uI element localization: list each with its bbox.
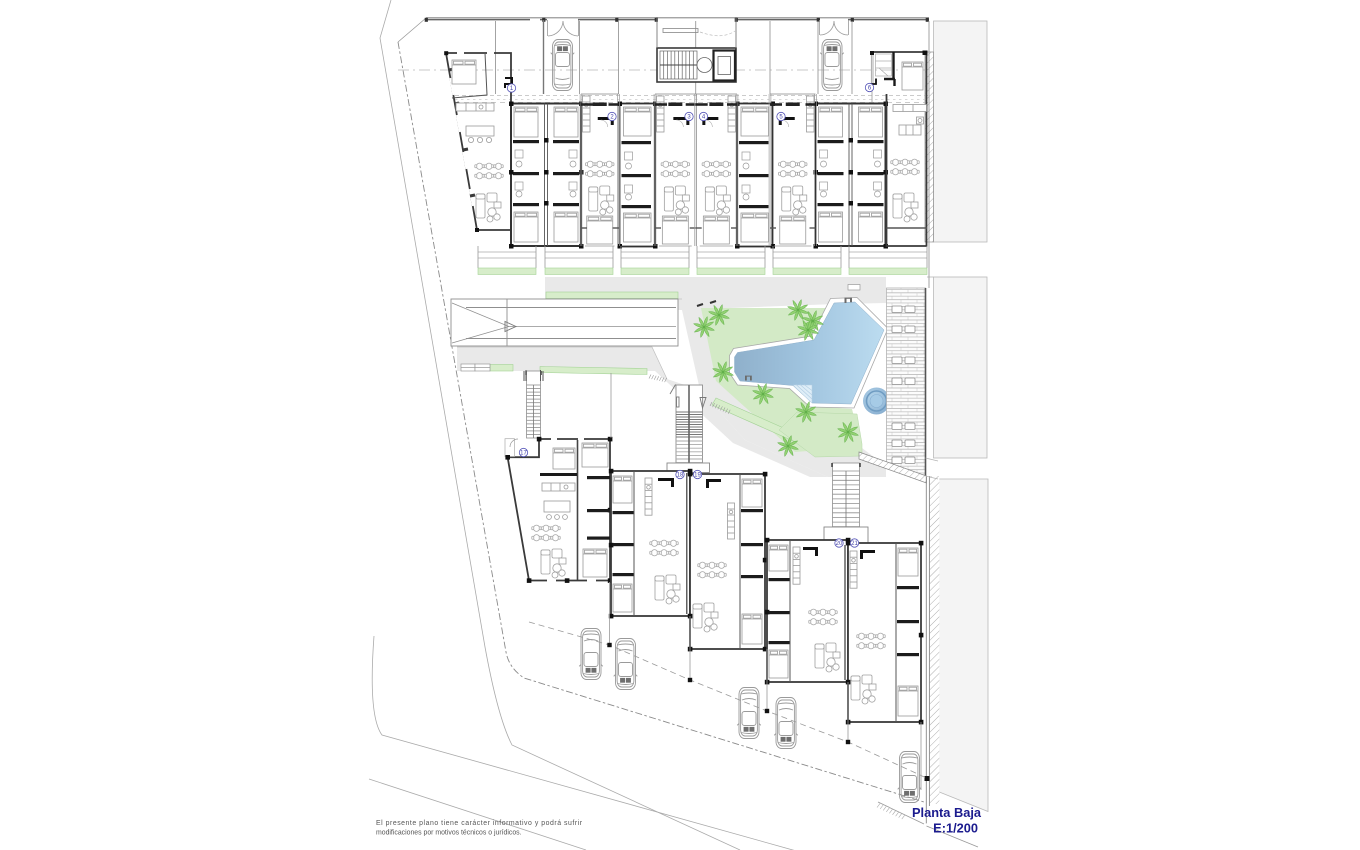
svg-text:E:1/200: E:1/200 (933, 821, 978, 836)
svg-text:19: 19 (694, 473, 701, 479)
svg-text:17: 17 (520, 451, 527, 457)
svg-text:El presente plano tiene caráct: El presente plano tiene carácter informa… (376, 820, 583, 827)
svg-text:modificaciones por motivos téc: modificaciones por motivos técnicos o ju… (376, 830, 522, 837)
svg-text:18: 18 (677, 473, 684, 479)
svg-text:20: 20 (836, 541, 843, 547)
svg-text:21: 21 (851, 541, 858, 547)
svg-text:Planta Baja: Planta Baja (912, 805, 982, 820)
